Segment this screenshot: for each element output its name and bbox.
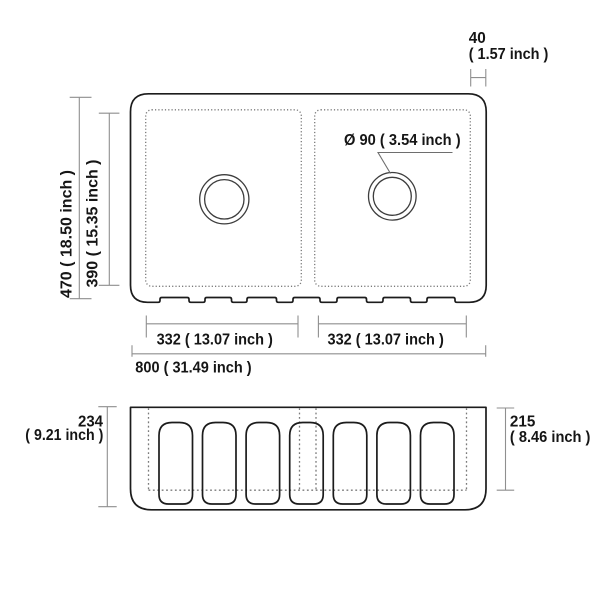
svg-text:( 8.46 inch ): ( 8.46 inch ) bbox=[510, 429, 591, 446]
svg-text:332 ( 13.07 inch ): 332 ( 13.07 inch ) bbox=[328, 332, 444, 349]
svg-text:Ø 90 ( 3.54 inch ): Ø 90 ( 3.54 inch ) bbox=[344, 132, 461, 149]
svg-text:( 1.57 inch ): ( 1.57 inch ) bbox=[469, 46, 549, 63]
svg-text:40: 40 bbox=[469, 30, 486, 47]
svg-text:470 ( 18.50 inch ): 470 ( 18.50 inch ) bbox=[59, 170, 76, 298]
svg-text:( 9.21 inch ): ( 9.21 inch ) bbox=[25, 427, 103, 444]
svg-text:332 ( 13.07 inch ): 332 ( 13.07 inch ) bbox=[157, 332, 273, 349]
svg-text:390 ( 15.35 inch ): 390 ( 15.35 inch ) bbox=[85, 160, 102, 288]
svg-text:215: 215 bbox=[510, 413, 536, 430]
svg-text:800 ( 31.49 inch ): 800 ( 31.49 inch ) bbox=[135, 360, 251, 377]
